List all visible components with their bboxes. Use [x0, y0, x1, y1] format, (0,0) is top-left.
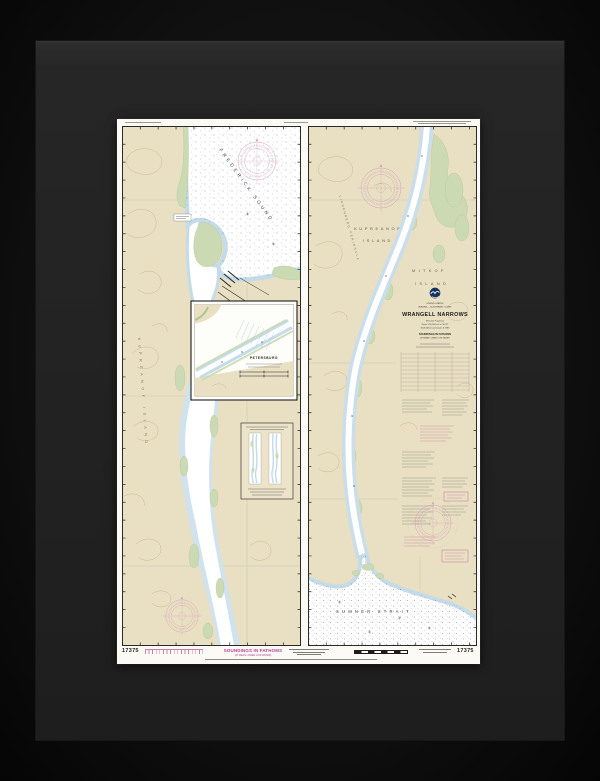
title-scale: Scale 1:20,000 at Lat. 56°37' — [422, 323, 449, 326]
light-label-box — [174, 214, 191, 221]
chart-paper: FREDERICK SOUND KUPREANOF ISLAND — [117, 119, 480, 664]
left-panel-map: FREDERICK SOUND KUPREANOF ISLAND — [122, 126, 301, 646]
title-projection: Mercator Projection — [426, 320, 445, 323]
chart-title: WRANGELL NARROWS — [402, 312, 468, 318]
top-margin-note — [125, 122, 161, 123]
footer-micro-text — [205, 659, 377, 660]
magenta-legend-strip — [145, 649, 203, 654]
panel-north-narrows: FREDERICK SOUND KUPREANOF ISLAND — [122, 126, 301, 646]
panel-south-narrows: LINDENBERG PENINSULA KUPREANOF ISLAND MI… — [308, 126, 477, 646]
soundings-note: SOUNDINGS IN FATHOMS — [221, 648, 285, 653]
label-kupreanof-1: KUPREANOF — [354, 226, 402, 231]
chart-number-right: 17375 — [457, 648, 474, 654]
framed-chart-photo: FREDERICK SOUND KUPREANOF ISLAND — [0, 0, 600, 781]
title-region: ALASKA — SOUTHEAST COAST — [418, 306, 452, 309]
title-datum: North American Datum of 1983 — [421, 327, 450, 330]
title-soundings-sub: AT MEAN LOWER LOW WATER — [420, 337, 450, 340]
title-nation: UNITED STATES — [427, 302, 444, 305]
label-mitkof-2: ISLAND — [415, 282, 449, 286]
right-panel-map: LINDENBERG PENINSULA KUPREANOF ISLAND MI… — [308, 126, 477, 646]
label-sumner-strait: SUMNER STRAIT — [336, 609, 412, 614]
label-kupreanof-2: ISLAND — [363, 238, 393, 243]
chart-number-left: 17375 — [122, 648, 139, 654]
bar-scale — [354, 650, 408, 654]
top-margin-note — [284, 122, 308, 123]
top-margin-note — [418, 123, 466, 124]
label-mitkof-1: MITKOF — [412, 269, 447, 273]
bottom-margin: 17375 SOUNDINGS IN FATHOMS (AT MEAN LOWE… — [117, 646, 480, 664]
top-margin-note — [413, 121, 471, 122]
inset-title: PETERSBURG — [250, 356, 278, 360]
title-soundings: SOUNDINGS IN FATHOMS — [419, 332, 451, 336]
continuation-box — [241, 423, 293, 499]
noaa-logo — [430, 288, 440, 298]
soundings-note-sub: (AT MEAN LOWER LOW WATER) — [221, 654, 285, 657]
petersburg-inset: PETERSBURG — [191, 301, 297, 400]
